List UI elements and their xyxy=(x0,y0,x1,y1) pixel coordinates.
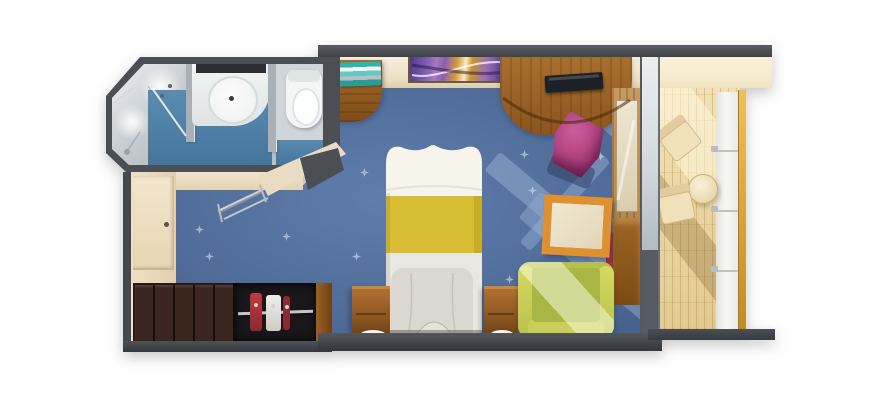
north-wall xyxy=(318,45,772,57)
carpet-star xyxy=(195,225,204,234)
carpet-star xyxy=(352,252,361,261)
sofa-arm xyxy=(598,266,614,334)
toilet xyxy=(286,70,322,128)
carpet-star xyxy=(282,232,291,241)
railing-bracket xyxy=(711,266,718,272)
balcony-glass-door xyxy=(640,55,660,335)
bathroom-floor xyxy=(112,64,323,165)
book-stack xyxy=(339,61,382,86)
balcony-south-wall xyxy=(648,329,775,340)
wall-artwork xyxy=(408,53,514,83)
carpet-star xyxy=(505,275,514,284)
bathroom-south-wall-face xyxy=(176,172,303,190)
bathroom-blue-floor xyxy=(276,138,323,165)
artwork-strokes xyxy=(410,55,512,81)
stateroom-floorplan xyxy=(0,0,881,400)
sofa-seat xyxy=(532,268,600,322)
wardrobe-cabinets xyxy=(133,283,237,345)
carpet-star xyxy=(205,252,214,261)
lower-cabinet xyxy=(612,218,640,305)
balcony-ceiling-face xyxy=(645,57,772,88)
bed xyxy=(381,138,487,340)
sofa-arm xyxy=(518,266,534,334)
railing-bracket xyxy=(711,206,718,212)
railing-gold-handrail xyxy=(738,90,746,334)
entry-west-wall xyxy=(123,172,131,352)
hanging-clothes-red xyxy=(283,296,290,330)
mirror-closet-strip xyxy=(612,88,640,305)
hanging-clothes-white xyxy=(266,295,281,331)
bed-drawing xyxy=(381,138,487,340)
chair-seat xyxy=(657,191,696,225)
closet-mirror xyxy=(616,100,638,212)
open-closet xyxy=(233,283,318,341)
balcony-railing xyxy=(716,92,738,332)
south-wall-main xyxy=(318,333,662,351)
hanging-clothes-red xyxy=(250,293,262,331)
sofa xyxy=(518,262,614,338)
coffee-table xyxy=(541,194,612,257)
vanity-mirror xyxy=(196,64,266,73)
carpet-star xyxy=(520,150,529,159)
south-wall-left xyxy=(123,341,332,352)
ceiling-light-glow xyxy=(114,104,150,140)
carpet-star xyxy=(360,168,369,177)
floorplan-canvas xyxy=(0,0,881,400)
bedroom-west-wall xyxy=(328,57,340,153)
entry-door xyxy=(133,176,174,270)
round-sink xyxy=(208,76,258,124)
railing-bracket xyxy=(711,146,718,152)
